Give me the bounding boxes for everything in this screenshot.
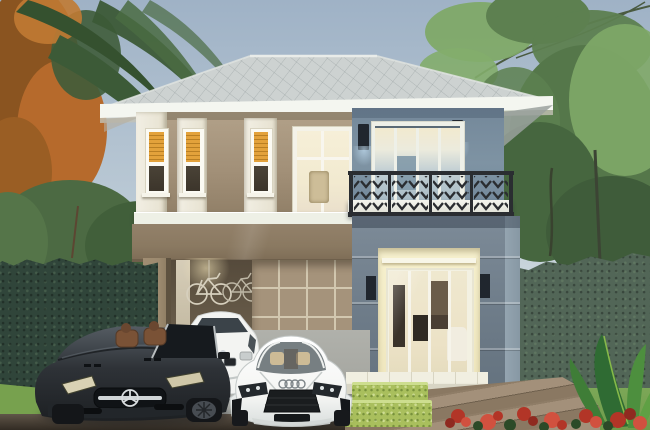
- flower-clusters: [445, 407, 647, 430]
- bicycles: [185, 252, 260, 314]
- window-a-glass: [149, 166, 164, 191]
- upper-sill-band: [134, 212, 360, 224]
- window-large: [292, 126, 354, 222]
- entry-glass-reflection: [389, 271, 467, 375]
- window-c-frame: [250, 128, 273, 196]
- entry-cornice: [382, 258, 476, 263]
- window-c-lit-blind: [254, 132, 268, 162]
- house-render-image: [0, 0, 650, 430]
- window-b-lit-blind: [186, 132, 200, 162]
- balcony-door-track: [375, 126, 460, 128]
- window-a-lit-blind: [149, 132, 164, 162]
- eave-shadow-blue: [352, 108, 504, 118]
- window-b-sill: [179, 193, 206, 197]
- window-a-frame: [145, 128, 169, 196]
- entry-recess: [378, 248, 480, 390]
- entry-sconce-right: [480, 274, 490, 298]
- car-white-sport: [226, 328, 356, 430]
- red-flowers: [440, 392, 650, 430]
- window-c-sill: [247, 193, 274, 197]
- entry-sconce-left: [366, 276, 376, 300]
- window-large-artwork: [309, 171, 329, 203]
- entry-glass-doors: [386, 268, 474, 382]
- balcony-railing: [348, 168, 514, 220]
- window-b-glass: [186, 166, 200, 191]
- lower-wall-corner-face: [505, 216, 520, 404]
- window-large-transom: [297, 157, 349, 160]
- balcony-under-shadow: [352, 216, 520, 228]
- window-c-glass: [254, 166, 268, 191]
- car-dark-convertible: [28, 318, 238, 424]
- window-a-sill: [142, 193, 170, 197]
- entry-interior: [389, 271, 467, 375]
- window-b-frame: [182, 128, 205, 196]
